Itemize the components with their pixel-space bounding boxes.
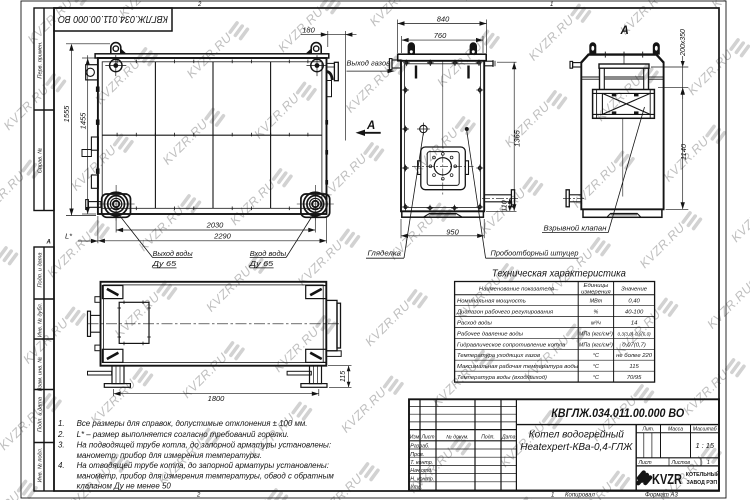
svg-text:1555: 1555 bbox=[62, 105, 71, 123]
svg-text:70/95: 70/95 bbox=[627, 375, 642, 381]
svg-text:Копировал: Копировал bbox=[565, 493, 595, 499]
svg-text:2.: 2. bbox=[57, 430, 65, 439]
svg-text:А: А bbox=[46, 240, 51, 246]
svg-text:№ докум.: № докум. bbox=[446, 434, 468, 440]
svg-text:760: 760 bbox=[434, 31, 447, 40]
svg-text:40-100: 40-100 bbox=[625, 310, 644, 316]
svg-text:КВГЛЖ.034.011.00.000 ВО: КВГЛЖ.034.011.00.000 ВО bbox=[58, 13, 168, 25]
svg-text:L*: L* bbox=[65, 232, 73, 241]
svg-text:1 : 15: 1 : 15 bbox=[695, 441, 714, 450]
svg-text:Масштаб: Масштаб bbox=[693, 427, 718, 433]
svg-text:Т. контр.: Т. контр. bbox=[410, 460, 433, 466]
svg-text:манометр, прибор для измерения: манометр, прибор для измерения температу… bbox=[77, 451, 262, 460]
svg-text:Heatexpert-КВа-0,4-ГЛЖ: Heatexpert-КВа-0,4-ГЛЖ bbox=[520, 442, 633, 453]
svg-text:Значение: Значение bbox=[621, 286, 648, 292]
svg-text:Инв. № подл.: Инв. № подл. bbox=[38, 448, 44, 483]
svg-text:2290: 2290 bbox=[213, 231, 232, 240]
svg-text:А: А bbox=[620, 25, 629, 37]
svg-text:0,40: 0,40 bbox=[628, 299, 640, 305]
svg-text:КВГЛЖ.034.011.00.000 ВО: КВГЛЖ.034.011.00.000 ВО bbox=[551, 406, 684, 420]
svg-text:1455: 1455 bbox=[78, 112, 87, 130]
svg-text:Наименование показателя: Наименование показателя bbox=[479, 286, 555, 292]
svg-text:Взам. инв. №: Взам. инв. № bbox=[38, 357, 44, 392]
svg-text:115: 115 bbox=[340, 371, 347, 382]
svg-text:Выход газов: Выход газов bbox=[347, 58, 391, 67]
svg-text:Н. контр.: Н. контр. bbox=[410, 476, 434, 482]
svg-text:180: 180 bbox=[302, 26, 315, 35]
svg-text:Формат А3: Формат А3 bbox=[645, 493, 678, 499]
svg-text:°С: °С bbox=[593, 353, 599, 359]
svg-text:0,07(0,7): 0,07(0,7) bbox=[622, 342, 646, 348]
svg-text:Ду 65: Ду 65 bbox=[249, 259, 275, 268]
svg-text:м³/ч: м³/ч bbox=[591, 321, 601, 327]
svg-text:950: 950 bbox=[446, 227, 459, 236]
svg-text:Диапазон рабочего регулировани: Диапазон рабочего регулирования bbox=[456, 310, 554, 316]
svg-text:1800: 1800 bbox=[208, 394, 226, 403]
svg-text:3.: 3. bbox=[58, 441, 65, 450]
svg-text:А: А bbox=[366, 120, 375, 132]
svg-text:На отводящей трубе котла, до з: На отводящей трубе котла, до запорной ар… bbox=[77, 461, 329, 470]
svg-text:Утв.: Утв. bbox=[410, 485, 422, 491]
svg-text:Расход воды: Расход воды bbox=[457, 321, 493, 327]
svg-text:Подп. и дата: Подп. и дата bbox=[38, 252, 44, 287]
svg-text:Лист: Лист bbox=[638, 460, 652, 466]
svg-text:1365: 1365 bbox=[513, 129, 522, 147]
svg-text:измерения: измерения bbox=[581, 289, 611, 295]
svg-text:14: 14 bbox=[631, 321, 638, 327]
svg-text:2: 2 bbox=[197, 2, 202, 8]
svg-text:Перв. примен.: Перв. примен. bbox=[38, 41, 44, 78]
svg-text:Листов: Листов bbox=[671, 460, 691, 466]
svg-text:Разраб.: Разраб. bbox=[410, 444, 429, 450]
svg-text:клапаном Ду не менее 50: клапаном Ду не менее 50 bbox=[77, 482, 172, 491]
svg-text:0,3(3,0)-0,6(6,0): 0,3(3,0)-0,6(6,0) bbox=[617, 331, 651, 336]
svg-text:4.: 4. bbox=[58, 461, 65, 470]
svg-text:1.: 1. bbox=[58, 419, 65, 428]
svg-text:Масса: Масса bbox=[668, 427, 683, 433]
svg-text:Справ. №: Справ. № bbox=[38, 148, 44, 173]
svg-text:Взрывной клапан: Взрывной клапан bbox=[544, 223, 608, 232]
svg-text:°С: °С bbox=[593, 364, 599, 370]
svg-text:2: 2 bbox=[196, 493, 201, 499]
svg-text:ЗАВОД РЭП: ЗАВОД РЭП bbox=[687, 480, 718, 486]
svg-text:Изм: Изм bbox=[410, 434, 420, 440]
svg-text:Лит.: Лит. bbox=[641, 427, 654, 433]
svg-text:Рабочее давление воды: Рабочее давление воды bbox=[457, 331, 524, 337]
svg-text:Подп. и дата: Подп. и дата bbox=[38, 397, 44, 432]
svg-text:%: % bbox=[594, 310, 599, 316]
svg-text:°С: °С bbox=[593, 375, 599, 381]
svg-text:110: 110 bbox=[502, 200, 509, 211]
svg-text:Инв. № дубл.: Инв. № дубл. bbox=[38, 303, 44, 337]
svg-text:МПа (кгс/см²): МПа (кгс/см²) bbox=[579, 331, 613, 337]
svg-text:манометр, прибор для измерения: манометр, прибор для измерения температу… bbox=[77, 471, 335, 480]
svg-text:Лист: Лист bbox=[420, 434, 434, 440]
svg-text:1: 1 bbox=[707, 460, 710, 466]
svg-text:Пробоотборный штуцер: Пробоотборный штуцер bbox=[491, 249, 579, 258]
svg-text:Выход воды: Выход воды bbox=[153, 249, 193, 258]
svg-text:Гидравлическое сопротивление к: Гидравлическое сопротивление котла bbox=[457, 342, 566, 348]
svg-text:Номинальная мощность: Номинальная мощность bbox=[457, 299, 526, 305]
svg-text:Пров.: Пров. bbox=[410, 452, 424, 458]
svg-text:200х350: 200х350 bbox=[680, 29, 687, 57]
svg-text:KVZR: KVZR bbox=[652, 472, 682, 488]
svg-text:Дата: Дата bbox=[501, 434, 516, 440]
svg-text:МПа (кгс/см²): МПа (кгс/см²) bbox=[579, 342, 613, 348]
svg-text:1: 1 bbox=[550, 2, 553, 8]
svg-text:115: 115 bbox=[629, 364, 639, 370]
svg-text:Ду 65: Ду 65 bbox=[151, 259, 177, 268]
svg-text:1140: 1140 bbox=[679, 143, 688, 160]
svg-text:Котел водогрейный: Котел водогрейный bbox=[529, 429, 625, 440]
svg-text:Максимальная рабочая температу: Максимальная рабочая температура воды bbox=[457, 364, 579, 370]
svg-text:КОТЕЛЬНЫЙ: КОТЕЛЬНЫЙ bbox=[686, 470, 720, 478]
svg-text:Техническая характеристика: Техническая характеристика bbox=[492, 269, 626, 280]
svg-text:Единицы: Единицы bbox=[584, 283, 609, 289]
svg-text:840: 840 bbox=[437, 14, 450, 23]
svg-text:Температура воды (вход/выход): Температура воды (вход/выход) bbox=[457, 375, 547, 381]
svg-text:2030: 2030 bbox=[206, 221, 225, 230]
svg-text:Вход воды: Вход воды bbox=[250, 249, 287, 258]
svg-text:Температура уходящих газов: Температура уходящих газов bbox=[457, 353, 540, 359]
svg-text:Все размеры для справок, допус: Все размеры для справок, допустимые откл… bbox=[77, 419, 308, 428]
svg-text:L* – размер выполняется соглас: L* – размер выполняется согласно требова… bbox=[77, 430, 289, 439]
svg-text:Нач.отд.: Нач.отд. bbox=[410, 468, 432, 474]
svg-text:не более 220: не более 220 bbox=[616, 353, 653, 359]
svg-text:1: 1 bbox=[551, 493, 554, 499]
svg-text:МВт: МВт bbox=[590, 299, 603, 305]
svg-text:Гляделка: Гляделка bbox=[368, 249, 402, 258]
svg-text:На подводящей трубе котла, до: На подводящей трубе котла, до запорной а… bbox=[77, 441, 331, 450]
svg-text:Подп.: Подп. bbox=[481, 434, 495, 440]
